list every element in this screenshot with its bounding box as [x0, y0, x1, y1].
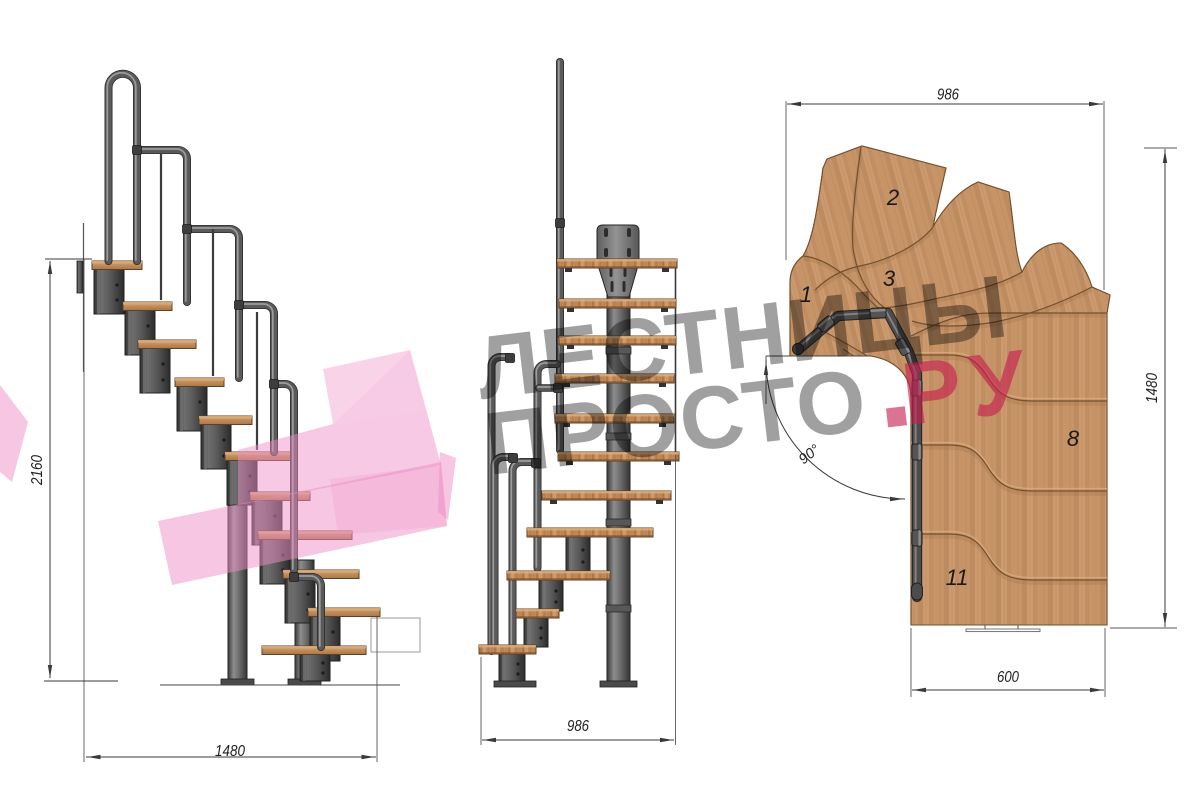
svg-text:11: 11	[946, 565, 969, 590]
svg-text:600: 600	[997, 669, 1019, 686]
svg-text:986: 986	[567, 718, 589, 735]
svg-text:2160: 2160	[29, 455, 46, 486]
svg-text:8: 8	[1067, 426, 1080, 451]
svg-text:1480: 1480	[215, 743, 245, 760]
svg-text:2: 2	[886, 185, 899, 210]
svg-text:РУ: РУ	[896, 329, 1040, 444]
svg-text:1480: 1480	[1144, 373, 1161, 403]
svg-text:986: 986	[937, 87, 959, 104]
